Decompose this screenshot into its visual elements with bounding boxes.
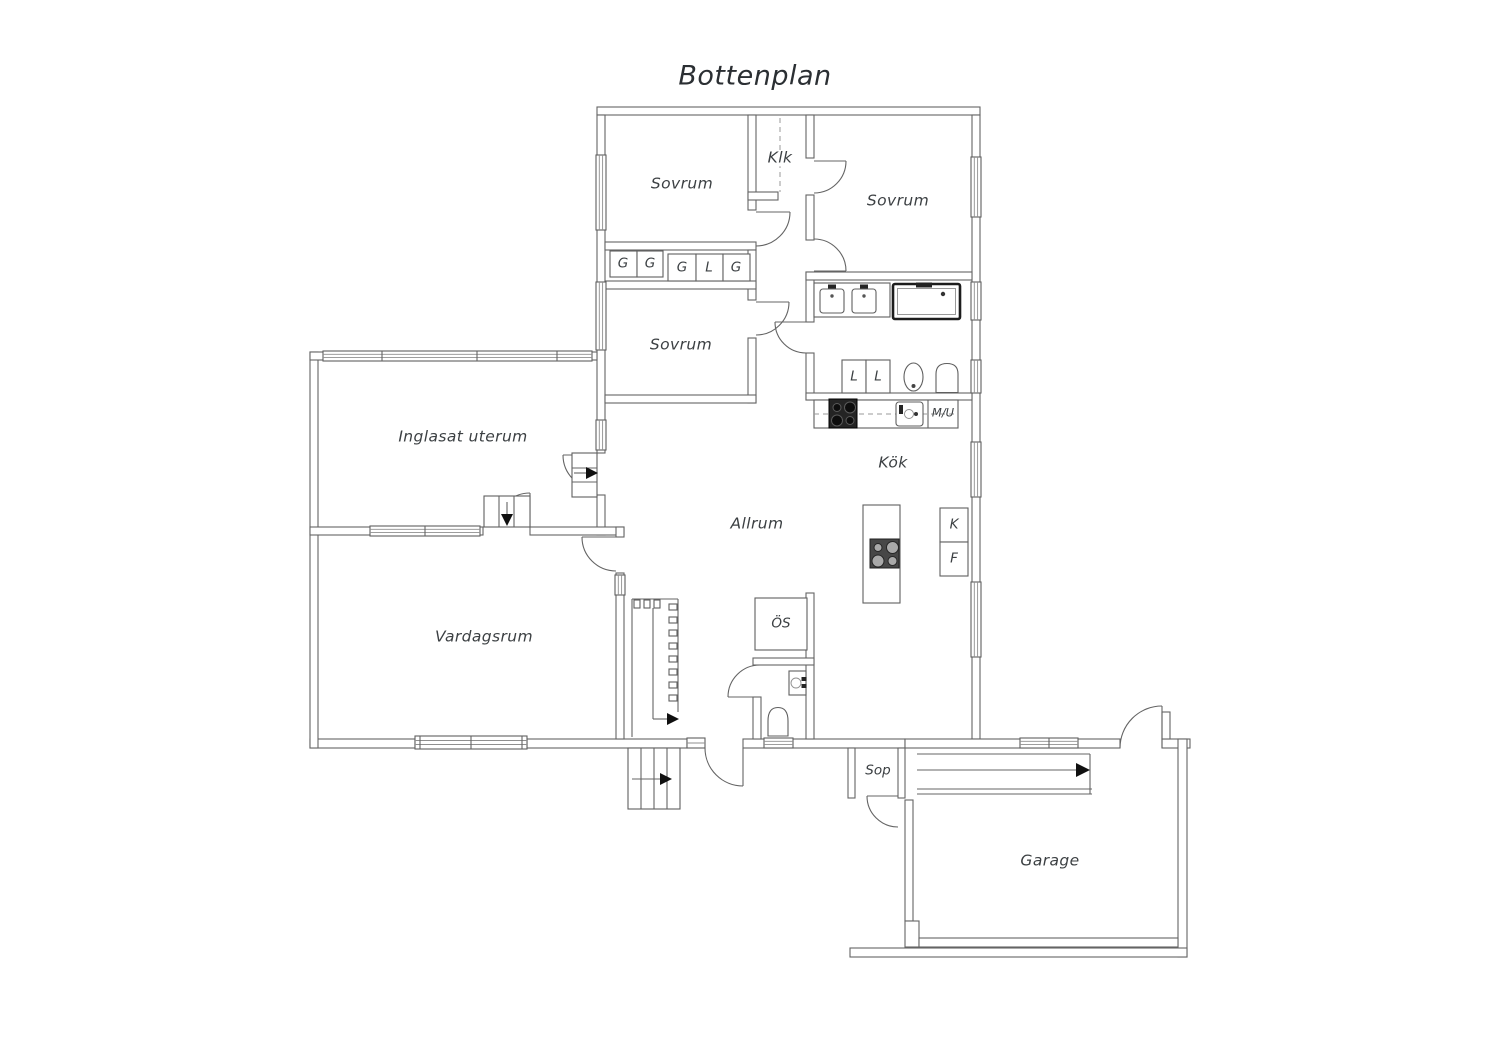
door-arc <box>728 665 760 697</box>
wardrobe-label-g1: G <box>618 257 628 271</box>
room-label-sovrum-top-right: Sovrum <box>867 193 929 209</box>
window-icon <box>971 442 981 497</box>
window-icon <box>1020 738 1078 748</box>
window-icon <box>596 420 606 450</box>
kitchen-sink-icon <box>896 402 923 426</box>
entry-steps <box>628 748 680 809</box>
door-arc <box>814 239 846 271</box>
window-icon <box>971 157 981 217</box>
room-label-inglasat-uterum: Inglasat uterum <box>398 429 527 445</box>
window-icon <box>971 360 981 393</box>
floor-plan-page: Bottenplan Sovrum Klk Sovrum Sovrum Ingl… <box>0 0 1500 1060</box>
room-label-kok: Kök <box>878 455 907 471</box>
cooktop-icon <box>829 399 857 428</box>
room-label-os: ÖS <box>771 617 790 631</box>
conservatory-steps <box>484 453 598 527</box>
wardrobe-label-g3: G <box>677 261 687 275</box>
island-cooktop-icon <box>870 539 899 568</box>
room-label-allrum: Allrum <box>731 516 784 532</box>
kitchen-fixtures <box>814 399 968 603</box>
window-icon <box>370 526 480 536</box>
linen-label-l2: L <box>874 370 882 384</box>
window-icon <box>596 282 606 350</box>
door-arc <box>775 322 806 353</box>
bathtub-icon <box>893 283 960 320</box>
appliance-label-kyl: K <box>950 518 959 532</box>
window-icon <box>415 736 527 749</box>
door-arc <box>867 796 898 827</box>
stair-direction-arrow <box>667 713 679 725</box>
room-label-vardagsrum: Vardagsrum <box>435 629 533 645</box>
appliance-label-frys: F <box>950 552 958 566</box>
interior-staircase <box>632 599 679 737</box>
wardrobe-label-g2: G <box>645 257 655 271</box>
door-arc <box>756 302 789 335</box>
wardrobe-label-l1: L <box>705 261 713 275</box>
door-arc <box>814 161 846 193</box>
wc-toilet-icon <box>768 708 788 737</box>
sink-icon <box>820 285 844 314</box>
door-arc <box>705 748 743 786</box>
room-label-sop: Sop <box>865 764 890 778</box>
wardrobe-label-g4: G <box>731 261 741 275</box>
room-label-sovrum-top-left: Sovrum <box>651 176 713 192</box>
window-icon <box>323 351 592 361</box>
toilet-icon <box>904 363 923 391</box>
sink-icon <box>852 285 876 314</box>
appliance-label-mu: M/U <box>932 407 954 419</box>
wc-sink-icon <box>789 671 807 695</box>
window-icon <box>764 738 793 748</box>
room-label-klk: Klk <box>765 150 796 166</box>
window-icon <box>687 738 705 748</box>
linen-label-l1: L <box>850 370 858 384</box>
room-label-garage: Garage <box>1020 853 1079 869</box>
window-icon <box>596 155 606 230</box>
page-title: Bottenplan <box>678 61 831 92</box>
window-icon <box>971 582 981 657</box>
wc-fixtures <box>768 671 807 736</box>
door-arc <box>1120 706 1162 748</box>
garage-ramp <box>917 754 1092 794</box>
window-icon <box>615 575 625 595</box>
shower-bidet-icon <box>936 364 958 393</box>
ramp-direction-arrow <box>1076 763 1090 777</box>
door-arc <box>756 212 790 246</box>
door-arc <box>582 537 616 571</box>
window-icon <box>971 282 981 320</box>
room-label-sovrum-middle: Sovrum <box>650 337 712 353</box>
